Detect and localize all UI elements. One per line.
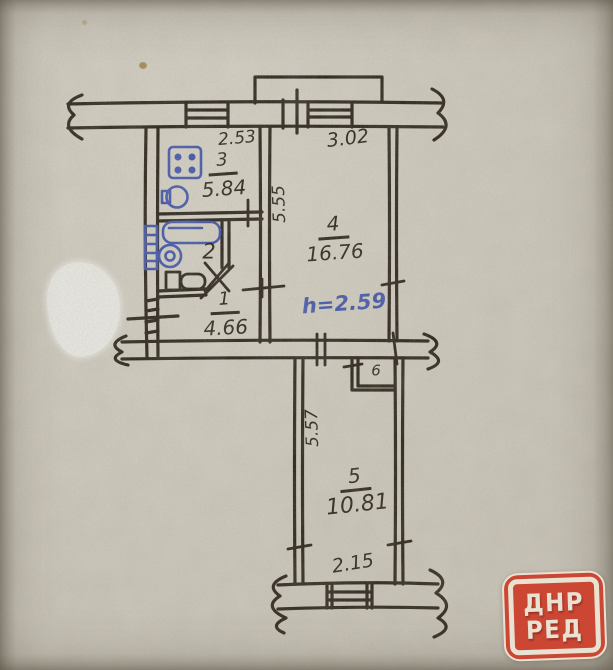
wall-break-mark <box>430 570 447 637</box>
room-label-closet: 6 <box>371 364 381 379</box>
balcony-outline <box>255 77 382 103</box>
room-number: 1 <box>209 290 240 316</box>
wall-break-mark <box>424 334 439 369</box>
living-room-window <box>308 103 352 127</box>
room5-window <box>327 584 372 608</box>
toilet-icon <box>166 272 205 290</box>
wall-break-mark <box>69 95 82 139</box>
floorplan-photo: 2.53 3.02 3 5.84 5.55 4 16.76 h=2.59 2 1… <box>0 0 613 670</box>
watermark-text-line1: ДНР <box>523 588 585 616</box>
room-area: 4.66 <box>203 316 249 338</box>
note-ceiling-height: h=2.59 <box>301 291 387 318</box>
plan-drawing <box>0 0 613 670</box>
middle-wall <box>115 334 439 369</box>
bottom-exterior-wall <box>272 570 446 637</box>
room-number: 4 <box>317 212 349 240</box>
room-area: 16.76 <box>306 240 365 264</box>
kitchen-window <box>186 103 228 127</box>
dim-kitchen-width: 2.53 <box>217 129 256 149</box>
dim-living-depth: 5.55 <box>271 185 289 223</box>
right-wall-upper <box>389 128 397 341</box>
room-label-hallway: 1 4.66 <box>202 289 249 338</box>
room-label-living: 4 16.76 <box>304 212 365 265</box>
room-label-kitchen: 3 5.84 <box>199 150 247 200</box>
washbasin-icon <box>159 245 181 267</box>
room-area: 5.84 <box>201 177 247 200</box>
stove-icon <box>169 147 201 178</box>
bathroom-walls <box>158 220 229 297</box>
room-label-room5: 5 10.81 <box>322 462 390 519</box>
watermark-badge: ДНР РЕД <box>501 570 607 662</box>
room-label-bathroom: 2 <box>202 242 215 263</box>
watermark-ring: ДНР РЕД <box>508 576 602 655</box>
dim-living-width: 3.02 <box>326 127 370 151</box>
kitchen-living-partition <box>260 128 270 342</box>
kitchen-sink-icon <box>162 187 188 208</box>
watermark-text-line2: РЕД <box>526 616 584 644</box>
dim-room5-depth: 5.57 <box>304 409 322 447</box>
entrance-tick <box>128 316 178 319</box>
room-number: 5 <box>338 464 371 493</box>
wall-break-mark <box>432 89 446 140</box>
kitchen-bathroom-partition <box>158 212 262 221</box>
room-number: 3 <box>207 151 238 177</box>
